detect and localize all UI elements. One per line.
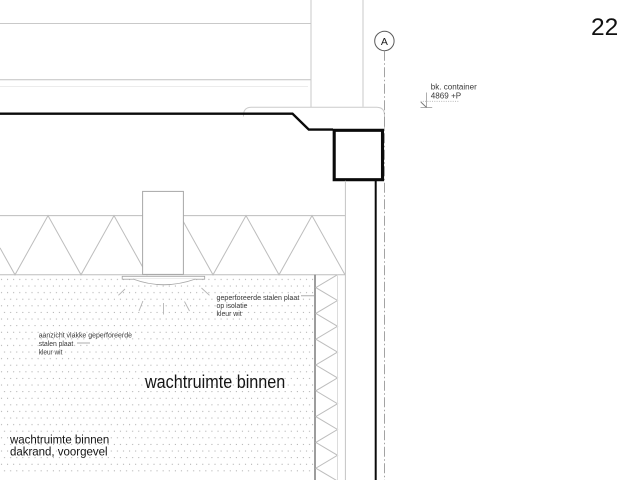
svg-text:kleur wit: kleur wit — [217, 309, 243, 318]
svg-text:kleur wit: kleur wit — [39, 347, 63, 356]
svg-text:dakrand, voorgevel: dakrand, voorgevel — [10, 445, 108, 459]
svg-text:bk. container: bk. container — [431, 83, 477, 92]
svg-text:22: 22 — [591, 14, 618, 41]
svg-text:A: A — [381, 36, 388, 48]
svg-text:wachtruimte binnen: wachtruimte binnen — [144, 372, 285, 392]
svg-text:4869 +P: 4869 +P — [431, 92, 461, 101]
